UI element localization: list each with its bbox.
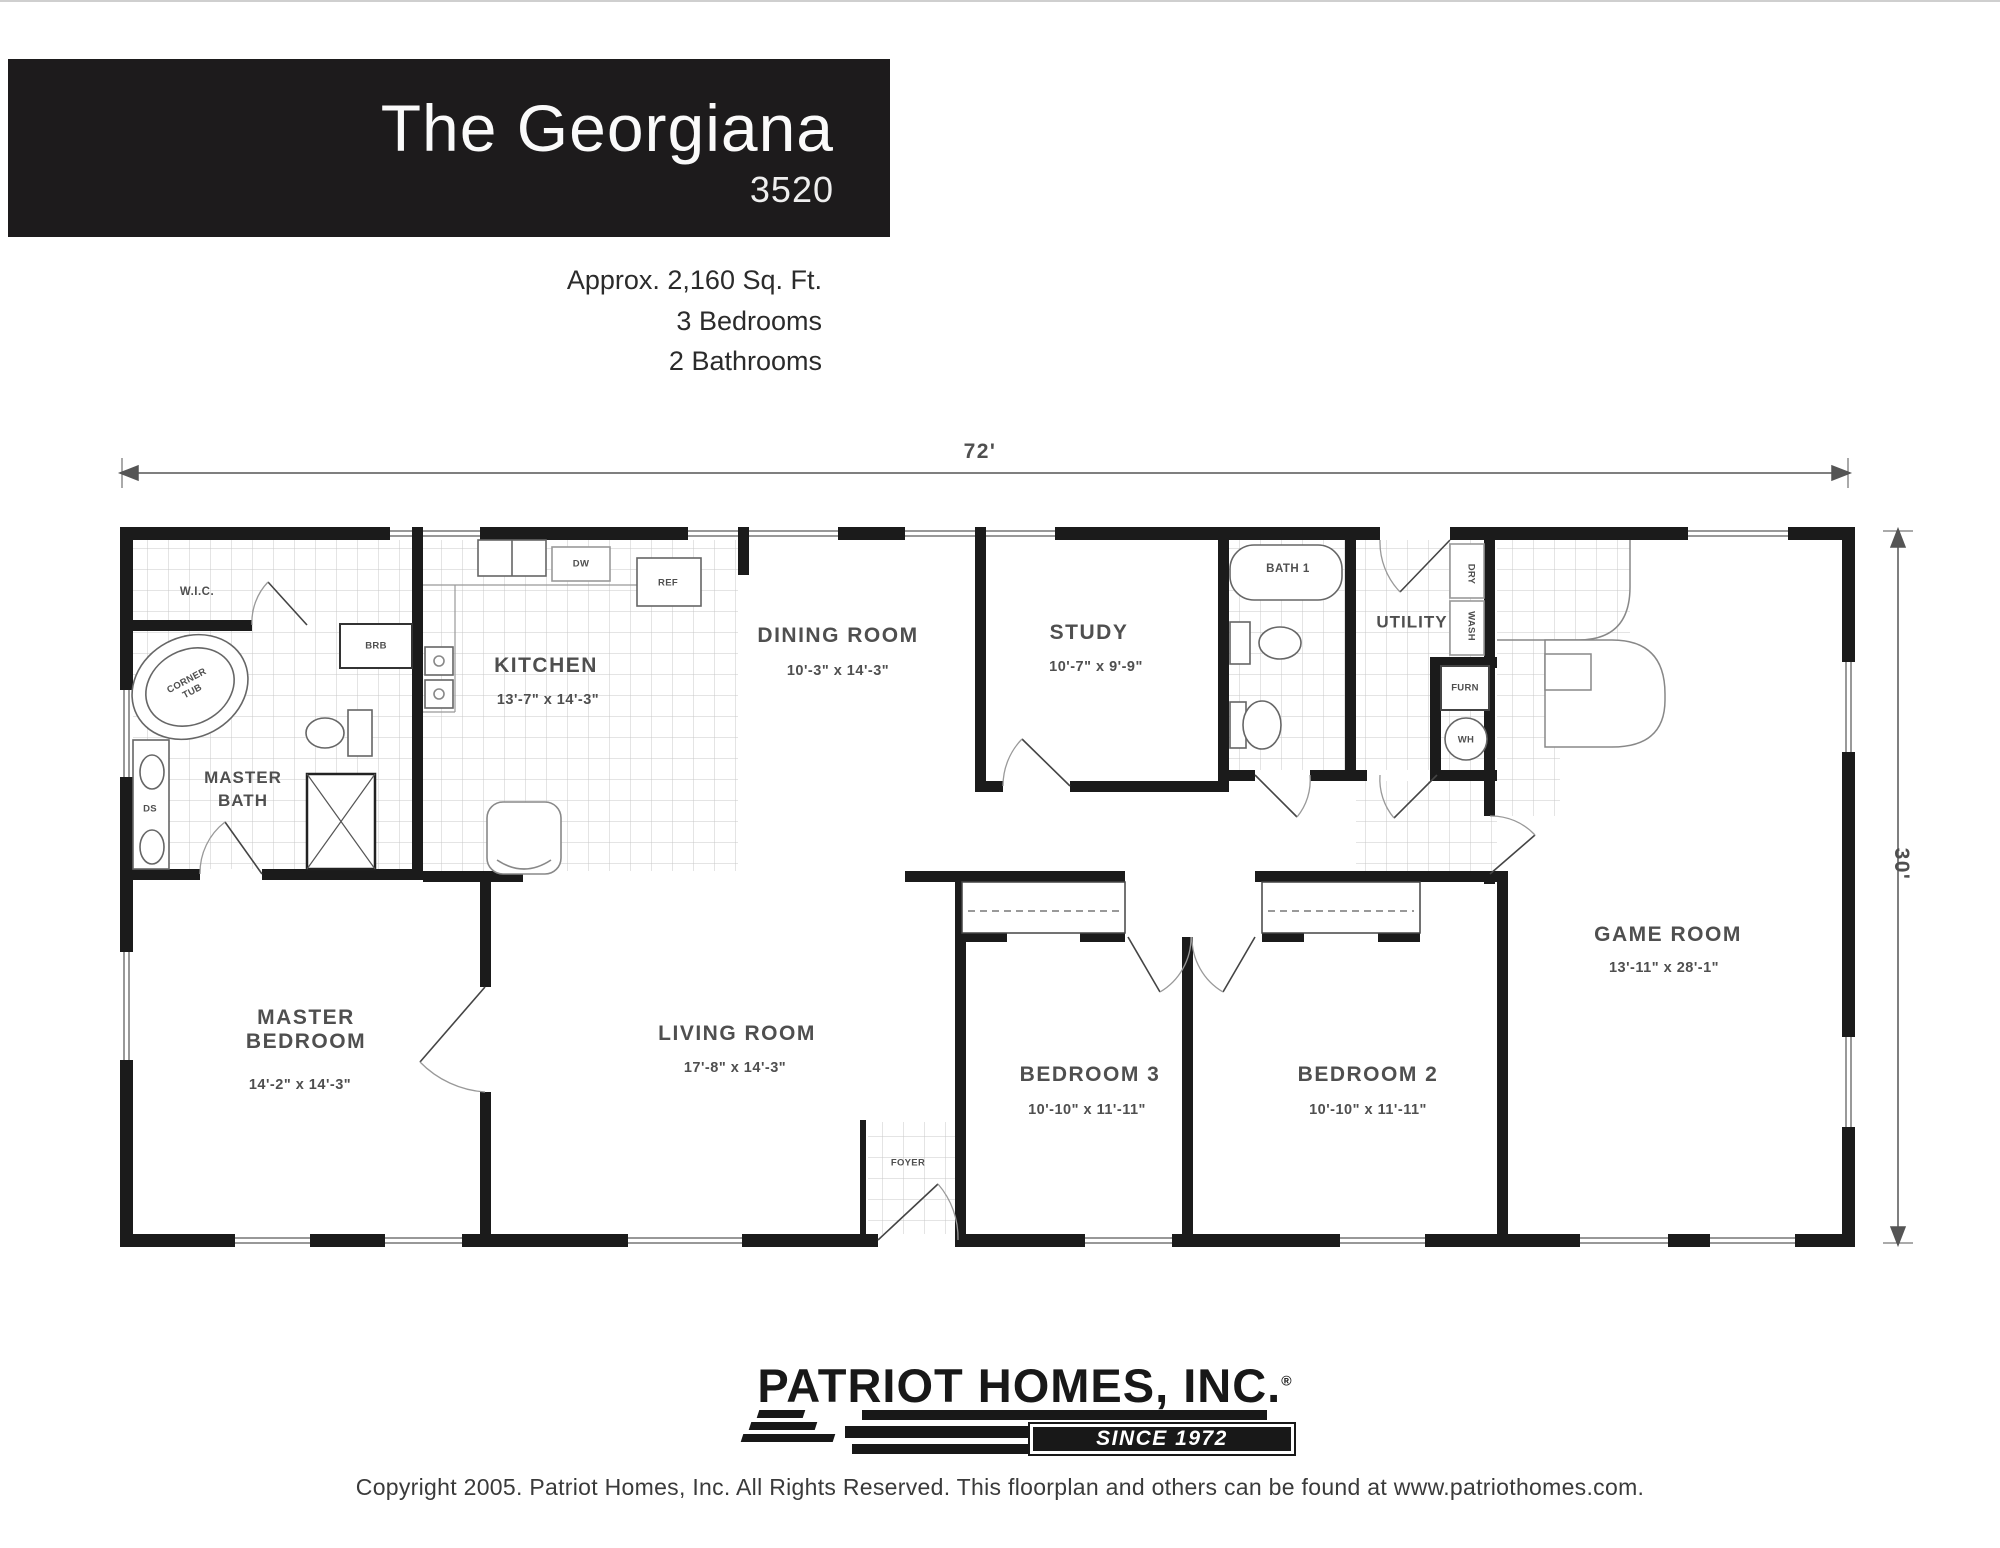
ds-label: DS bbox=[143, 804, 157, 815]
toilet-tank bbox=[1230, 622, 1250, 664]
study-dims: 10'-7" x 9'-9" bbox=[1049, 659, 1143, 675]
study-label: STUDY bbox=[1050, 621, 1129, 645]
patriot-homes-logo: PATRIOT HOMES, INC.® bbox=[745, 1358, 1305, 1413]
sink bbox=[140, 755, 164, 789]
kitchen-label: KITCHEN bbox=[494, 654, 598, 678]
furnace-label: FURN bbox=[1451, 683, 1479, 694]
water-heater-label: WH bbox=[1458, 735, 1474, 746]
bedroom2-dims: 10'-10" x 11'-11" bbox=[1309, 1102, 1427, 1118]
logo-flag-stripe bbox=[757, 1410, 806, 1418]
lounge-chair bbox=[487, 802, 561, 874]
bedroom3-label: BEDROOM 3 bbox=[1020, 1063, 1161, 1087]
since-1972-badge: SINCE 1972 bbox=[1028, 1422, 1296, 1456]
dryer-label: DRY bbox=[1466, 564, 1477, 585]
registered-mark: ® bbox=[1281, 1372, 1292, 1388]
master-bedroom-label: MASTER BEDROOM bbox=[246, 1006, 366, 1054]
dishwasher-label: DW bbox=[573, 559, 589, 570]
toilet bbox=[306, 718, 344, 748]
refrigerator-label: REF bbox=[658, 578, 678, 589]
floorplan-drawing bbox=[0, 2, 2000, 1548]
kitchen-dims: 13'-7" x 14'-3" bbox=[497, 692, 599, 708]
logo-flag-stripe bbox=[749, 1422, 818, 1430]
wic-label: W.I.C. bbox=[180, 586, 214, 598]
logo-bar bbox=[845, 1426, 1035, 1438]
bath1-label: BATH 1 bbox=[1266, 563, 1310, 575]
floorplan-page: The Georgiana 3520 Approx. 2,160 Sq. Ft.… bbox=[0, 0, 2000, 1548]
shower bbox=[307, 774, 375, 869]
bedroom3-dims: 10'-10" x 11'-11" bbox=[1028, 1102, 1146, 1118]
master-bath-label: MASTER BATH bbox=[204, 767, 282, 813]
game-room-dims: 13'-11" x 28'-1" bbox=[1609, 960, 1719, 976]
bedroom2-label: BEDROOM 2 bbox=[1298, 1063, 1439, 1087]
kitchen-sink bbox=[478, 540, 546, 576]
master-bedroom-dims: 14'-2" x 14'-3" bbox=[249, 1077, 351, 1093]
dimension-depth-label: 30' bbox=[1889, 848, 1913, 881]
foyer-label: FOYER bbox=[891, 1158, 925, 1169]
bar-sink bbox=[1545, 654, 1591, 690]
washer-label: WASH bbox=[1466, 611, 1477, 641]
living-room-dims: 17'-8" x 14'-3" bbox=[684, 1060, 786, 1076]
toilet-tank bbox=[348, 710, 372, 756]
dimension-width-label: 72' bbox=[964, 440, 997, 464]
logo-flag-stripe bbox=[741, 1434, 836, 1442]
game-room-label: GAME ROOM bbox=[1594, 923, 1742, 947]
living-room-label: LIVING ROOM bbox=[658, 1022, 816, 1046]
utility-label: UTILITY bbox=[1376, 612, 1447, 635]
sink bbox=[140, 830, 164, 864]
dining-room-label: DINING ROOM bbox=[757, 624, 918, 648]
brb-label: BRB bbox=[365, 641, 386, 652]
copyright-line: Copyright 2005. Patriot Homes, Inc. All … bbox=[0, 1474, 2000, 1501]
sink bbox=[1243, 701, 1281, 749]
dining-room-dims: 10'-3" x 14'-3" bbox=[787, 663, 889, 679]
logo-bar bbox=[862, 1410, 1267, 1420]
toilet bbox=[1259, 627, 1301, 659]
